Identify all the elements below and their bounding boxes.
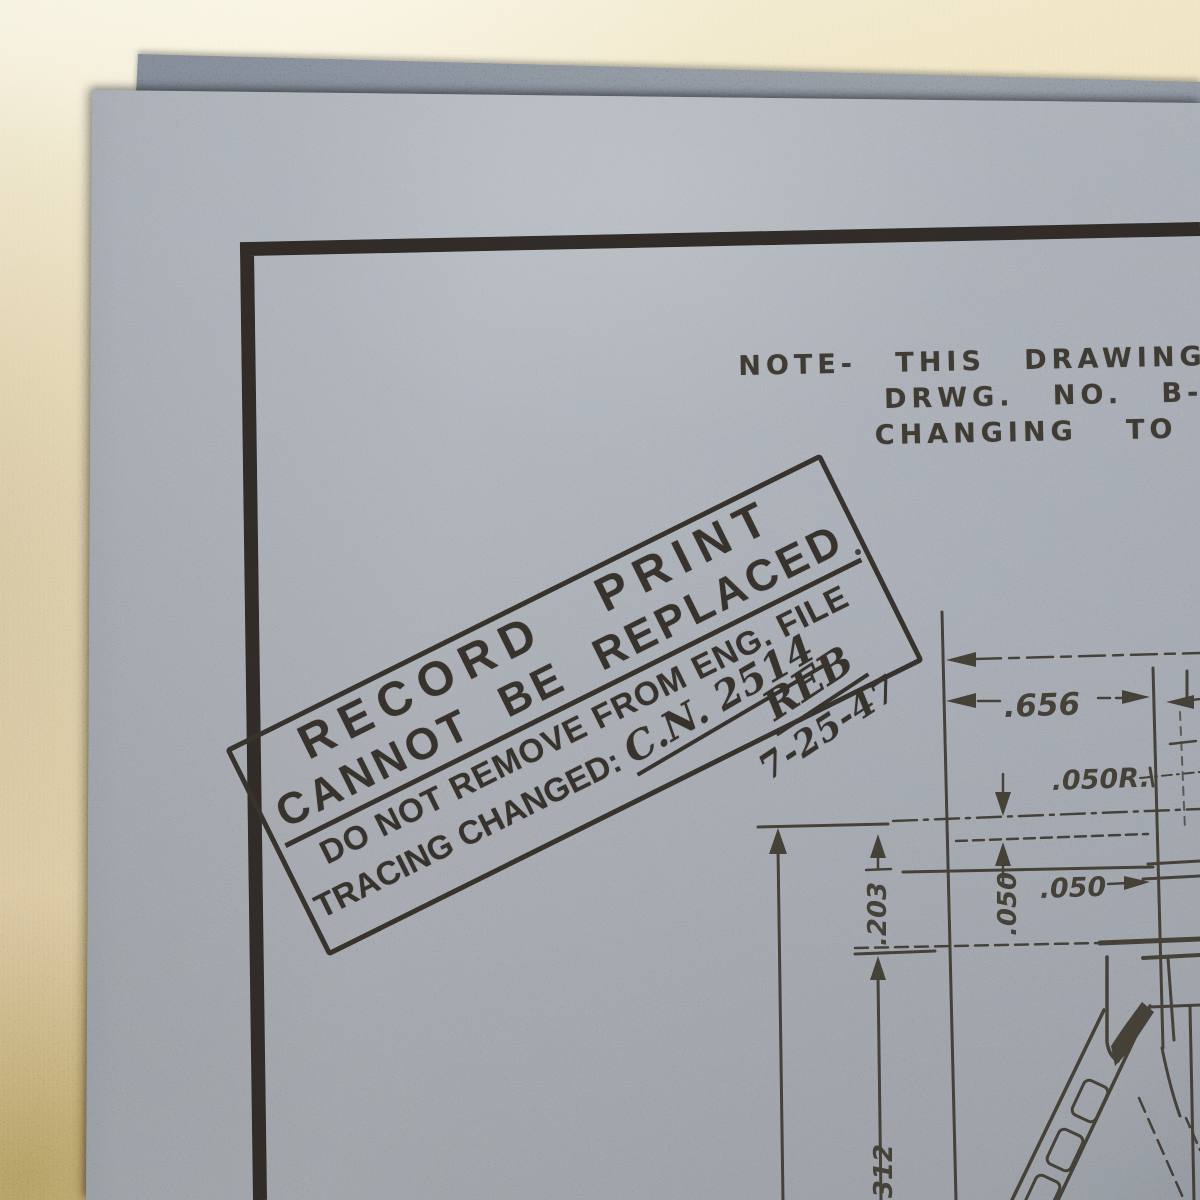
section-view: [1012, 957, 1200, 1200]
section-hatch-wedge: [1111, 1002, 1154, 1066]
dim-050-vertical-label: .050: [993, 872, 1023, 936]
dim-656-label: .656: [1003, 686, 1081, 725]
photo-of-record-print-drawing: NOTE- THIS DRAWING W DRWG. NO. B-35 CHAN…: [0, 0, 1200, 1200]
dim-050r-label: .050R.: [1051, 763, 1150, 797]
dim-203-label: .203: [863, 882, 893, 946]
dim-050-horizontal-label: .050: [1039, 872, 1107, 905]
dim-312-label: .312: [869, 1144, 899, 1200]
